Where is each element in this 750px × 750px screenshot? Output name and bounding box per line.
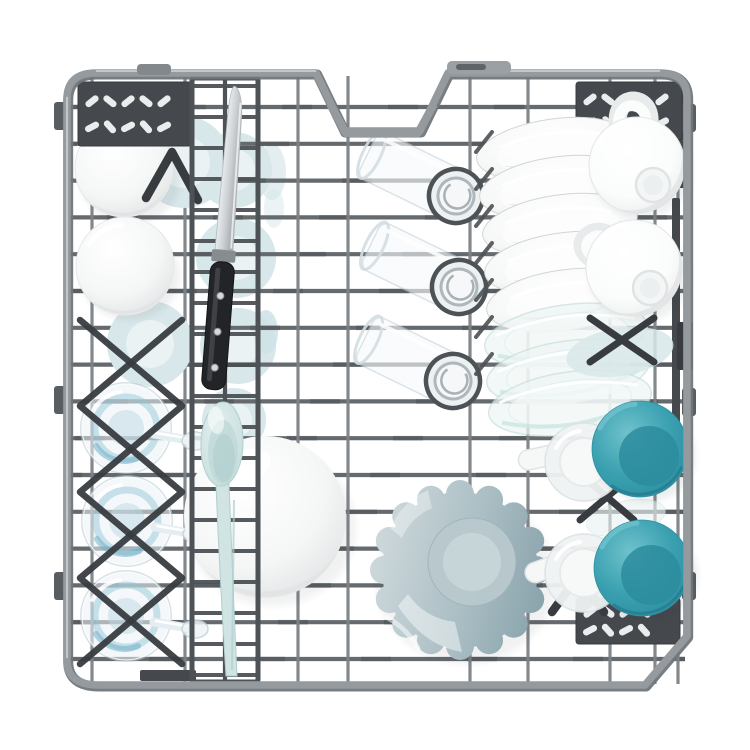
fold-down-shelf-top-left [78,82,192,146]
teal-cup [594,520,690,616]
knife-bolster [211,249,236,263]
frame-tab [137,64,171,75]
dishwasher-rack-photo: Top-down view of an open dishwasher rack… [0,0,750,750]
rack-scene [0,0,750,750]
white-bowl [76,217,174,315]
right-rail [672,198,680,430]
shelf-panel [78,82,192,146]
teal-cup [592,401,688,497]
basket-foot [140,670,196,681]
